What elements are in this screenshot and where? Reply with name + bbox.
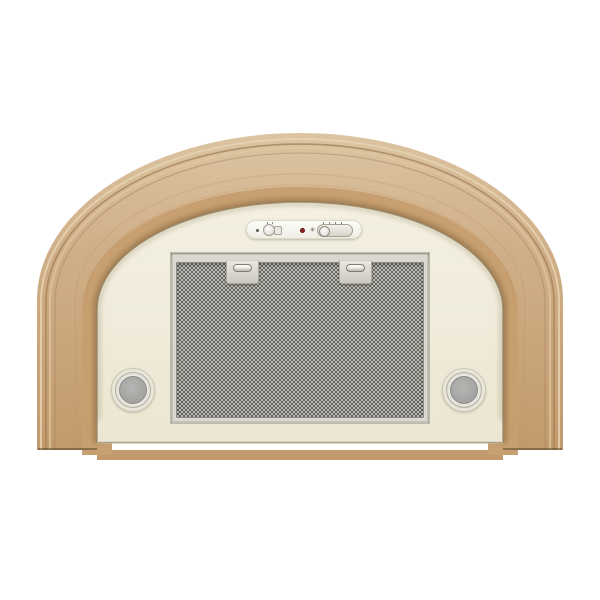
grease-filter-mesh	[176, 262, 424, 418]
lamp-lens	[450, 376, 478, 404]
lamp-ring	[446, 372, 482, 408]
fan-speed-slide-switch	[317, 224, 353, 237]
product-photo-range-hood: ✳	[0, 0, 600, 600]
light-slide-switch-track	[274, 226, 282, 235]
filter-recess	[170, 252, 430, 424]
filter-clip-slot	[346, 264, 365, 272]
filter-clip-slot	[233, 264, 252, 272]
lamp-right	[442, 368, 486, 412]
light-switch-tick	[272, 222, 273, 224]
lamp-ring	[115, 372, 151, 408]
lamp-dot-icon	[256, 229, 259, 232]
power-indicator-light	[300, 228, 305, 233]
lamp-left	[111, 368, 155, 412]
lamp-lens	[119, 376, 147, 404]
fan-icon: ✳	[309, 226, 316, 235]
fan-speed-knob	[319, 226, 330, 237]
filter-clip	[339, 261, 372, 284]
control-panel: ✳	[246, 220, 362, 239]
filter-clip	[226, 261, 259, 284]
